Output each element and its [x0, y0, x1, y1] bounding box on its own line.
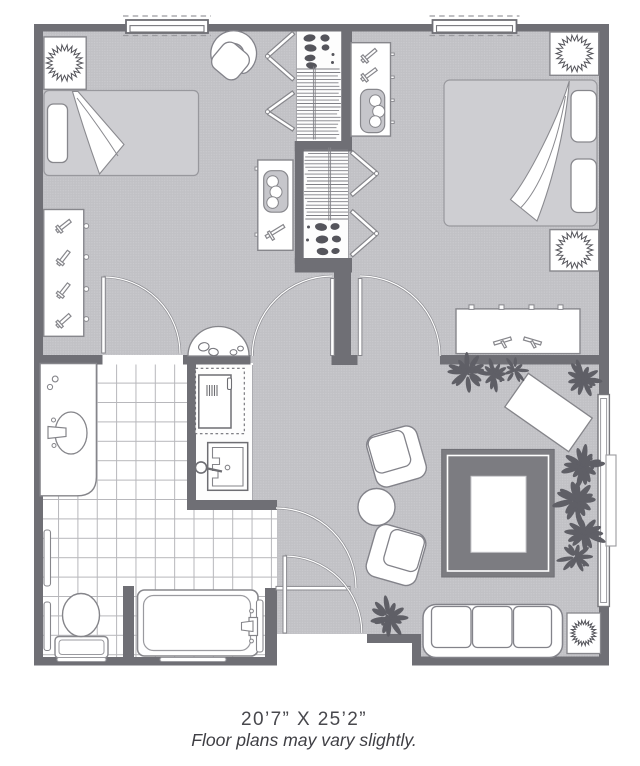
svg-text:Floor plans may vary slightly.: Floor plans may vary slightly.	[191, 730, 417, 750]
svg-text:20’7” X 25’2”: 20’7” X 25’2”	[241, 709, 367, 730]
